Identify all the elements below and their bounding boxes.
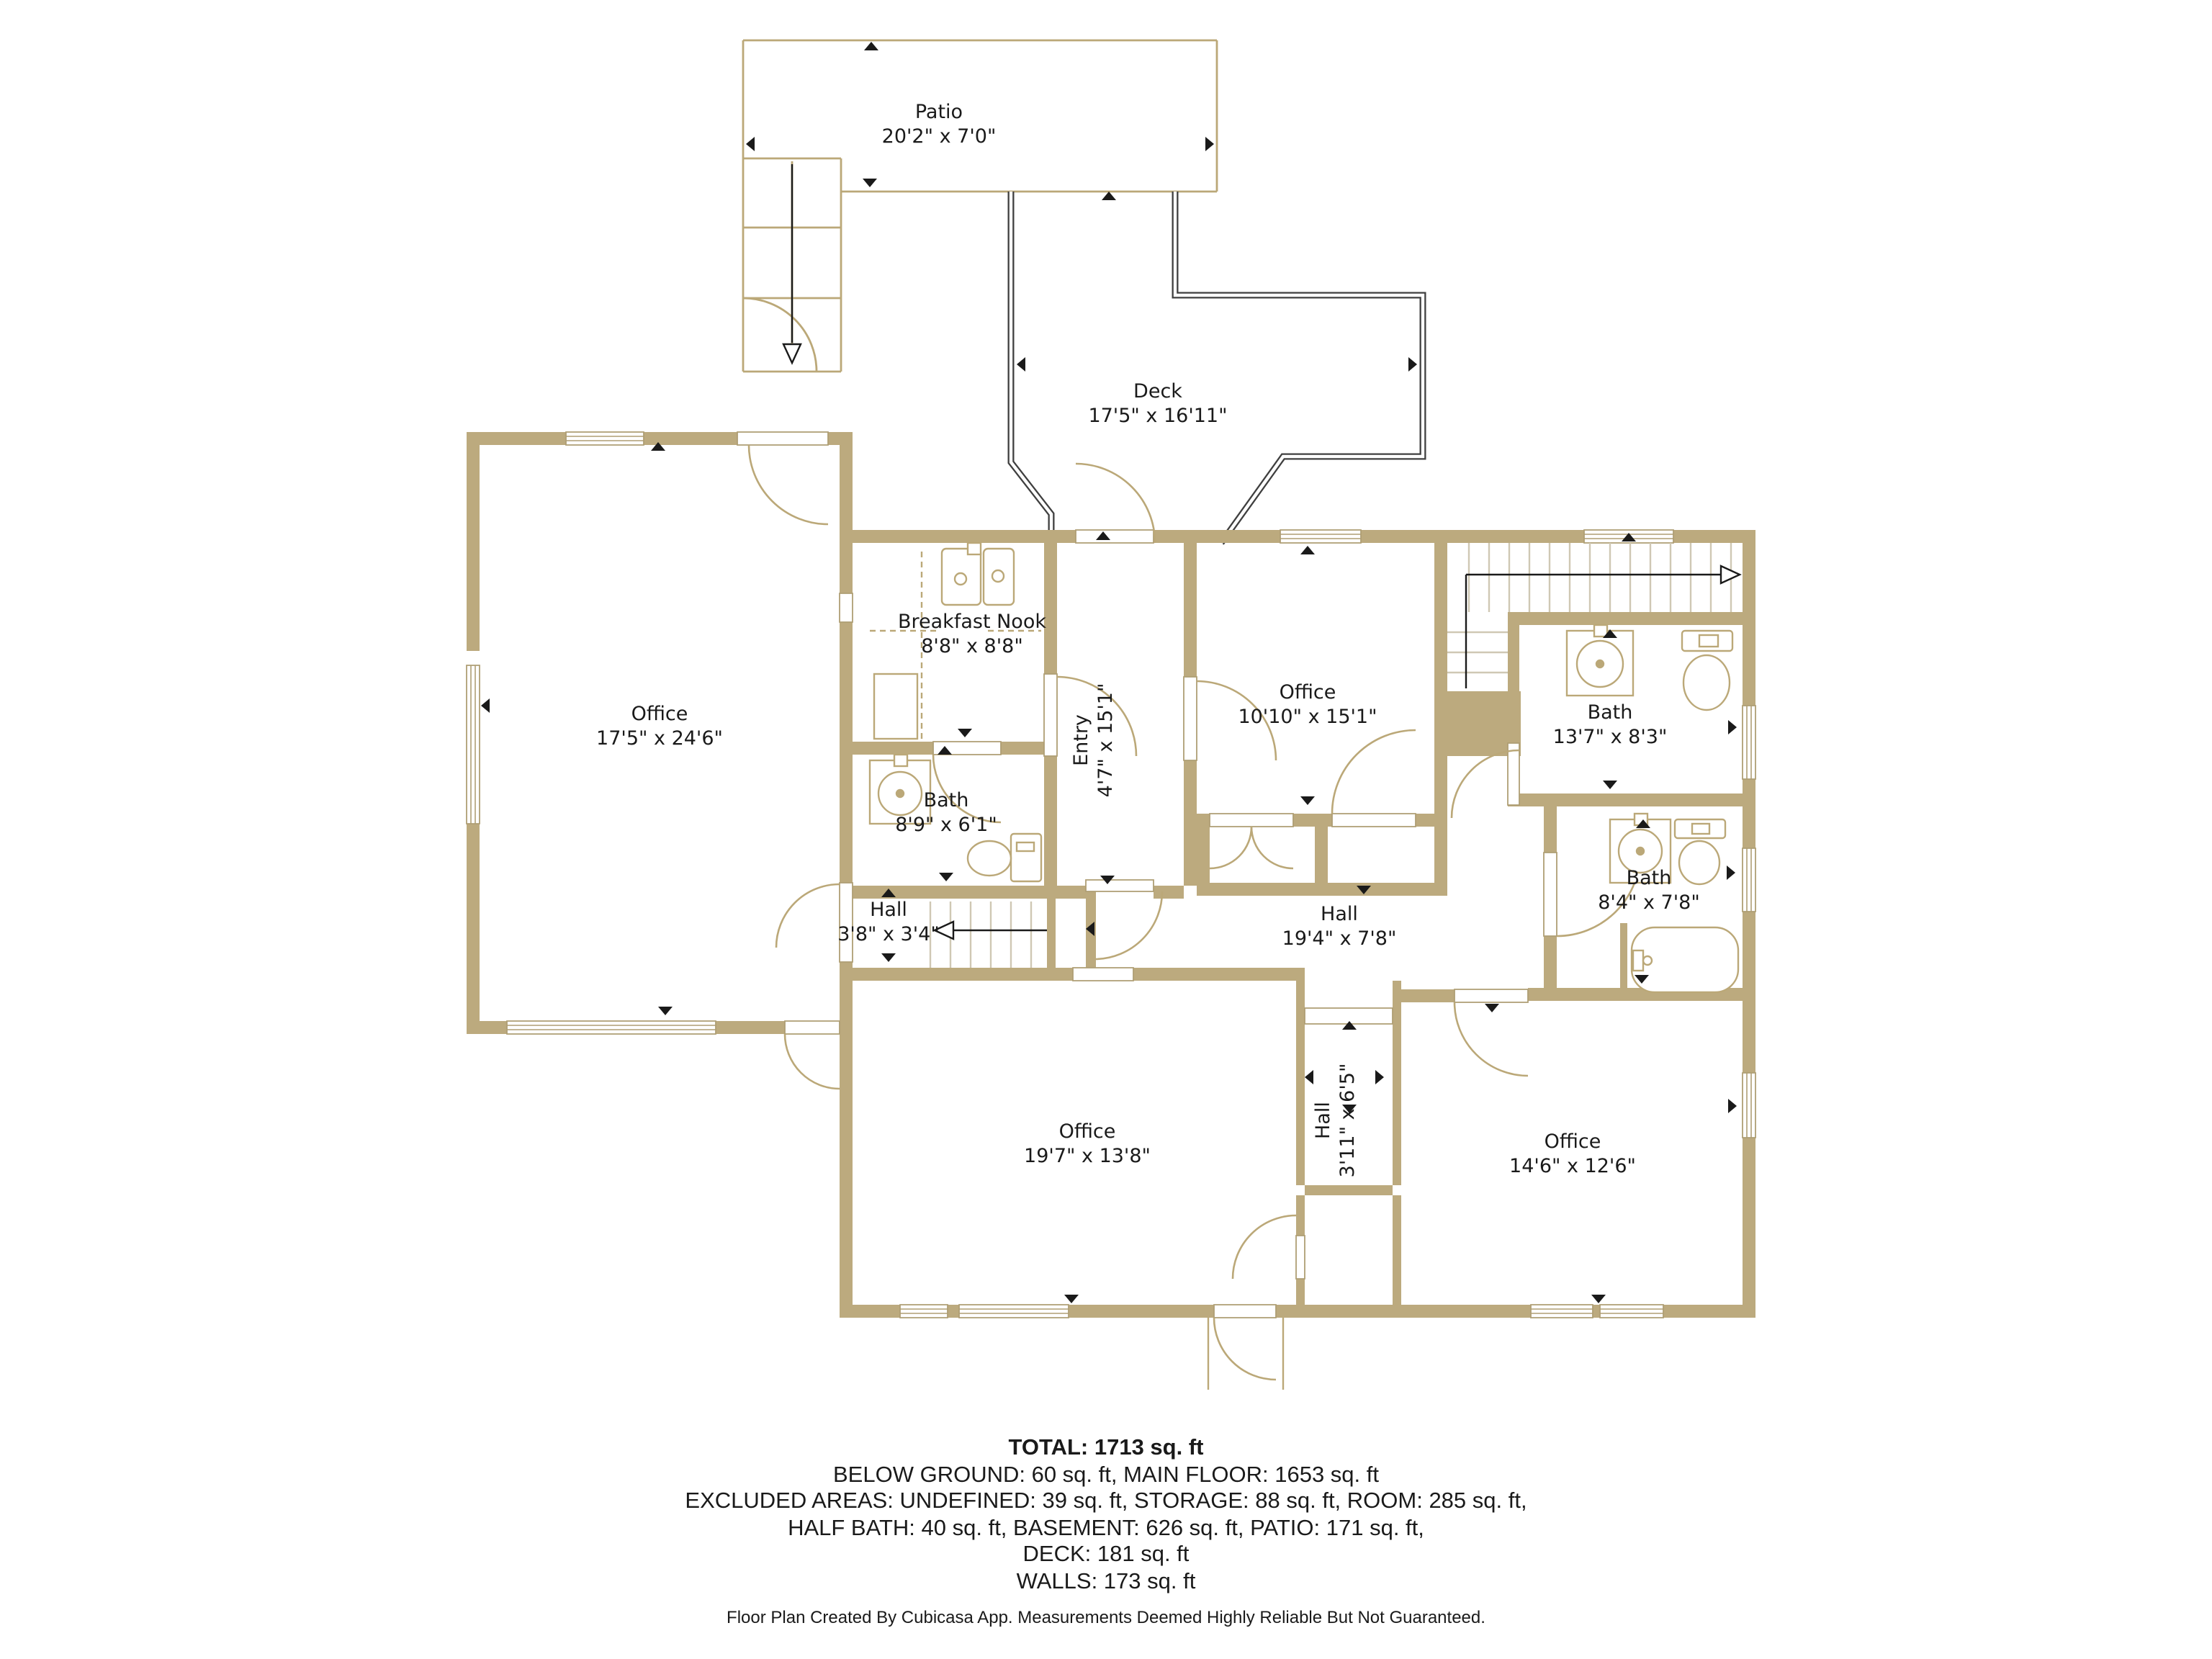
closet2-door-arc [1332, 730, 1416, 814]
stairs-layer [783, 164, 1740, 968]
room-label-office-left: Office17'5" x 24'6" [596, 703, 723, 752]
closet-office-19-door-arc [1233, 1215, 1296, 1279]
office-left-patio-door-arc [749, 445, 828, 524]
room-label-deck: Deck17'5" x 16'11" [1088, 380, 1227, 429]
area-summary: TOTAL: 1713 sq. ft BELOW GROUND: 60 sq. … [0, 1436, 2212, 1596]
summary-line: EXCLUDED AREAS: UNDEFINED: 39 sq. ft, ST… [0, 1489, 2212, 1516]
floor-plan-page: { "plan": { "rooms": [ {"name": "Patio",… [0, 0, 2212, 1659]
room-label-office-19: Office19'7" x 13'8" [1024, 1120, 1151, 1169]
summary-line: BELOW GROUND: 60 sq. ft, MAIN FLOOR: 165… [0, 1462, 2212, 1489]
patio-stairs-down-arrow [783, 164, 801, 363]
room-label-entry: Entry4'7" x 15'1" [1070, 683, 1119, 798]
room-label-hall-3-8: Hall3'8" x 3'4" [837, 899, 940, 948]
patio-outline [743, 40, 1217, 372]
room-label-hall-3-11: Hall3'11" x 6'5" [1312, 1064, 1361, 1178]
bath-8-9-toilet-icon [968, 834, 1041, 881]
closet1-door-arc-left [1210, 827, 1251, 868]
summary-line: DECK: 181 sq. ft [0, 1542, 2212, 1569]
room-label-office-mid: Office10'10" x 15'1" [1238, 681, 1377, 730]
windows-layer [467, 432, 1755, 1318]
office-left-hall-door-arc [776, 884, 840, 948]
dimension-ticks [481, 42, 1737, 1303]
bath-13-sink-icon [1567, 625, 1633, 696]
door-bands-layer [737, 432, 1557, 1318]
hall-office-14-door-arc [1455, 1002, 1528, 1076]
bathtub-icon [1632, 927, 1738, 992]
floor-plan-stage: Patio20'2" x 7'0" Deck17'5" x 16'11" Off… [0, 0, 2212, 1659]
entry-hall-door-arc [1096, 891, 1162, 959]
floor-plan-svg [0, 0, 2212, 1659]
room-label-office-14: Office14'6" x 12'6" [1509, 1130, 1636, 1179]
closet1-door-arc-right [1251, 827, 1293, 868]
kitchen-sink-icon [942, 543, 1014, 605]
summary-line: WALLS: 173 sq. ft [0, 1569, 2212, 1596]
room-label-bath-8-4: Bath8'4" x 7'8" [1598, 867, 1700, 916]
deck-railing [1011, 192, 1423, 543]
room-label-bath-13: Bath13'7" x 8'3" [1553, 701, 1668, 750]
room-label-patio: Patio20'2" x 7'0" [882, 101, 997, 150]
office-left-office-19-door-arc [785, 1034, 840, 1089]
total-area-line: TOTAL: 1713 sq. ft [0, 1436, 2212, 1462]
room-label-hall-19-4: Hall19'4" x 7'8" [1282, 903, 1397, 952]
patio-stair-door-arc [743, 298, 817, 372]
bath-13-toilet-icon [1682, 631, 1732, 710]
room-label-bath-8-9: Bath8'9" x 6'1" [895, 789, 997, 838]
walls-layer [467, 432, 1755, 1318]
room-label-breakfast-nook: Breakfast Nook8'8" x 8'8" [898, 611, 1046, 660]
exterior-back-door-arc [1214, 1318, 1276, 1380]
disclaimer-footer: Floor Plan Created By Cubicasa App. Meas… [0, 1607, 2212, 1627]
summary-line: HALF BATH: 40 sq. ft, BASEMENT: 626 sq. … [0, 1516, 2212, 1542]
kitchen-island [874, 674, 917, 739]
